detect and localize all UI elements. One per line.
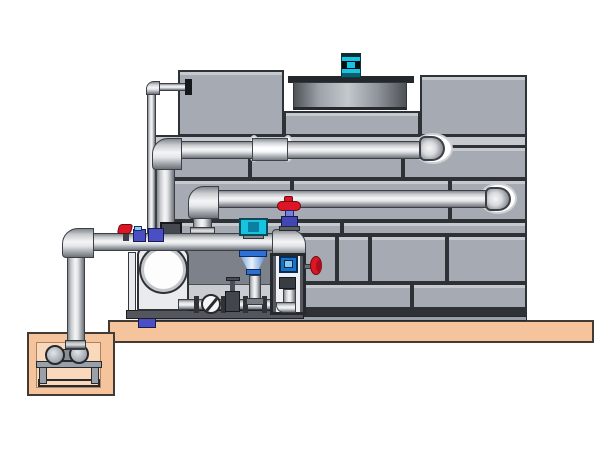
fan-motor-band-window bbox=[347, 62, 355, 68]
riser-bottom-flange bbox=[65, 340, 86, 349]
fan-motor-base bbox=[342, 73, 360, 77]
wall-brick bbox=[412, 283, 527, 309]
wall-brick bbox=[370, 235, 447, 283]
upper-header-pipe bbox=[170, 141, 432, 159]
actuated-valve-actuator-window bbox=[248, 222, 259, 232]
strainer-top-flange bbox=[239, 250, 267, 257]
illustration-canvas bbox=[0, 0, 600, 450]
tower-fan-deck-wall bbox=[284, 111, 420, 136]
pump-inlet bbox=[141, 247, 186, 292]
small-gate-valve-body bbox=[225, 291, 240, 312]
tower-top-left-panel bbox=[178, 70, 284, 136]
sump-stand-top-rail bbox=[36, 361, 102, 368]
wall-brick bbox=[342, 221, 527, 235]
butterfly-valve-disc bbox=[201, 294, 221, 314]
red-lever-cap bbox=[316, 260, 322, 272]
riser-pipe bbox=[67, 254, 85, 350]
strainer-drop-flange bbox=[246, 298, 264, 305]
wall-brick bbox=[337, 235, 370, 283]
sump-stand-leg-left bbox=[39, 366, 47, 384]
ball-valve-small-1-cap bbox=[134, 226, 142, 231]
upper-header-sleeve bbox=[252, 138, 288, 161]
vent-line-flange bbox=[185, 79, 192, 95]
lower-header-end-elbow bbox=[485, 187, 511, 211]
foundation-slab bbox=[108, 320, 594, 343]
upper-header-end-elbow bbox=[419, 136, 445, 161]
butterfly-valve-stem bbox=[203, 296, 219, 314]
fan-motor-top-cap bbox=[341, 53, 361, 57]
instrument-junction-box bbox=[279, 277, 296, 289]
tower-top-right-panel bbox=[420, 75, 527, 136]
fan-shroud bbox=[293, 82, 407, 110]
sump-stand-leg-right bbox=[91, 366, 99, 384]
instrument-gauge-window bbox=[284, 260, 293, 268]
frame-elbow-horizontal bbox=[276, 302, 296, 313]
skid-left-support bbox=[128, 252, 136, 312]
gate-valve-flange bbox=[279, 226, 300, 231]
sump-pump-body-left bbox=[45, 345, 65, 365]
lower-header-left-elbow bbox=[188, 186, 219, 219]
suction-header-left-elbow bbox=[62, 228, 94, 258]
wall-brick bbox=[447, 235, 527, 283]
upper-header-left-elbow bbox=[152, 138, 182, 170]
lower-header-pipe bbox=[206, 190, 496, 208]
train-flange bbox=[194, 296, 199, 313]
ball-valve-small-2 bbox=[148, 228, 164, 242]
vent-line-elbow bbox=[146, 81, 160, 95]
